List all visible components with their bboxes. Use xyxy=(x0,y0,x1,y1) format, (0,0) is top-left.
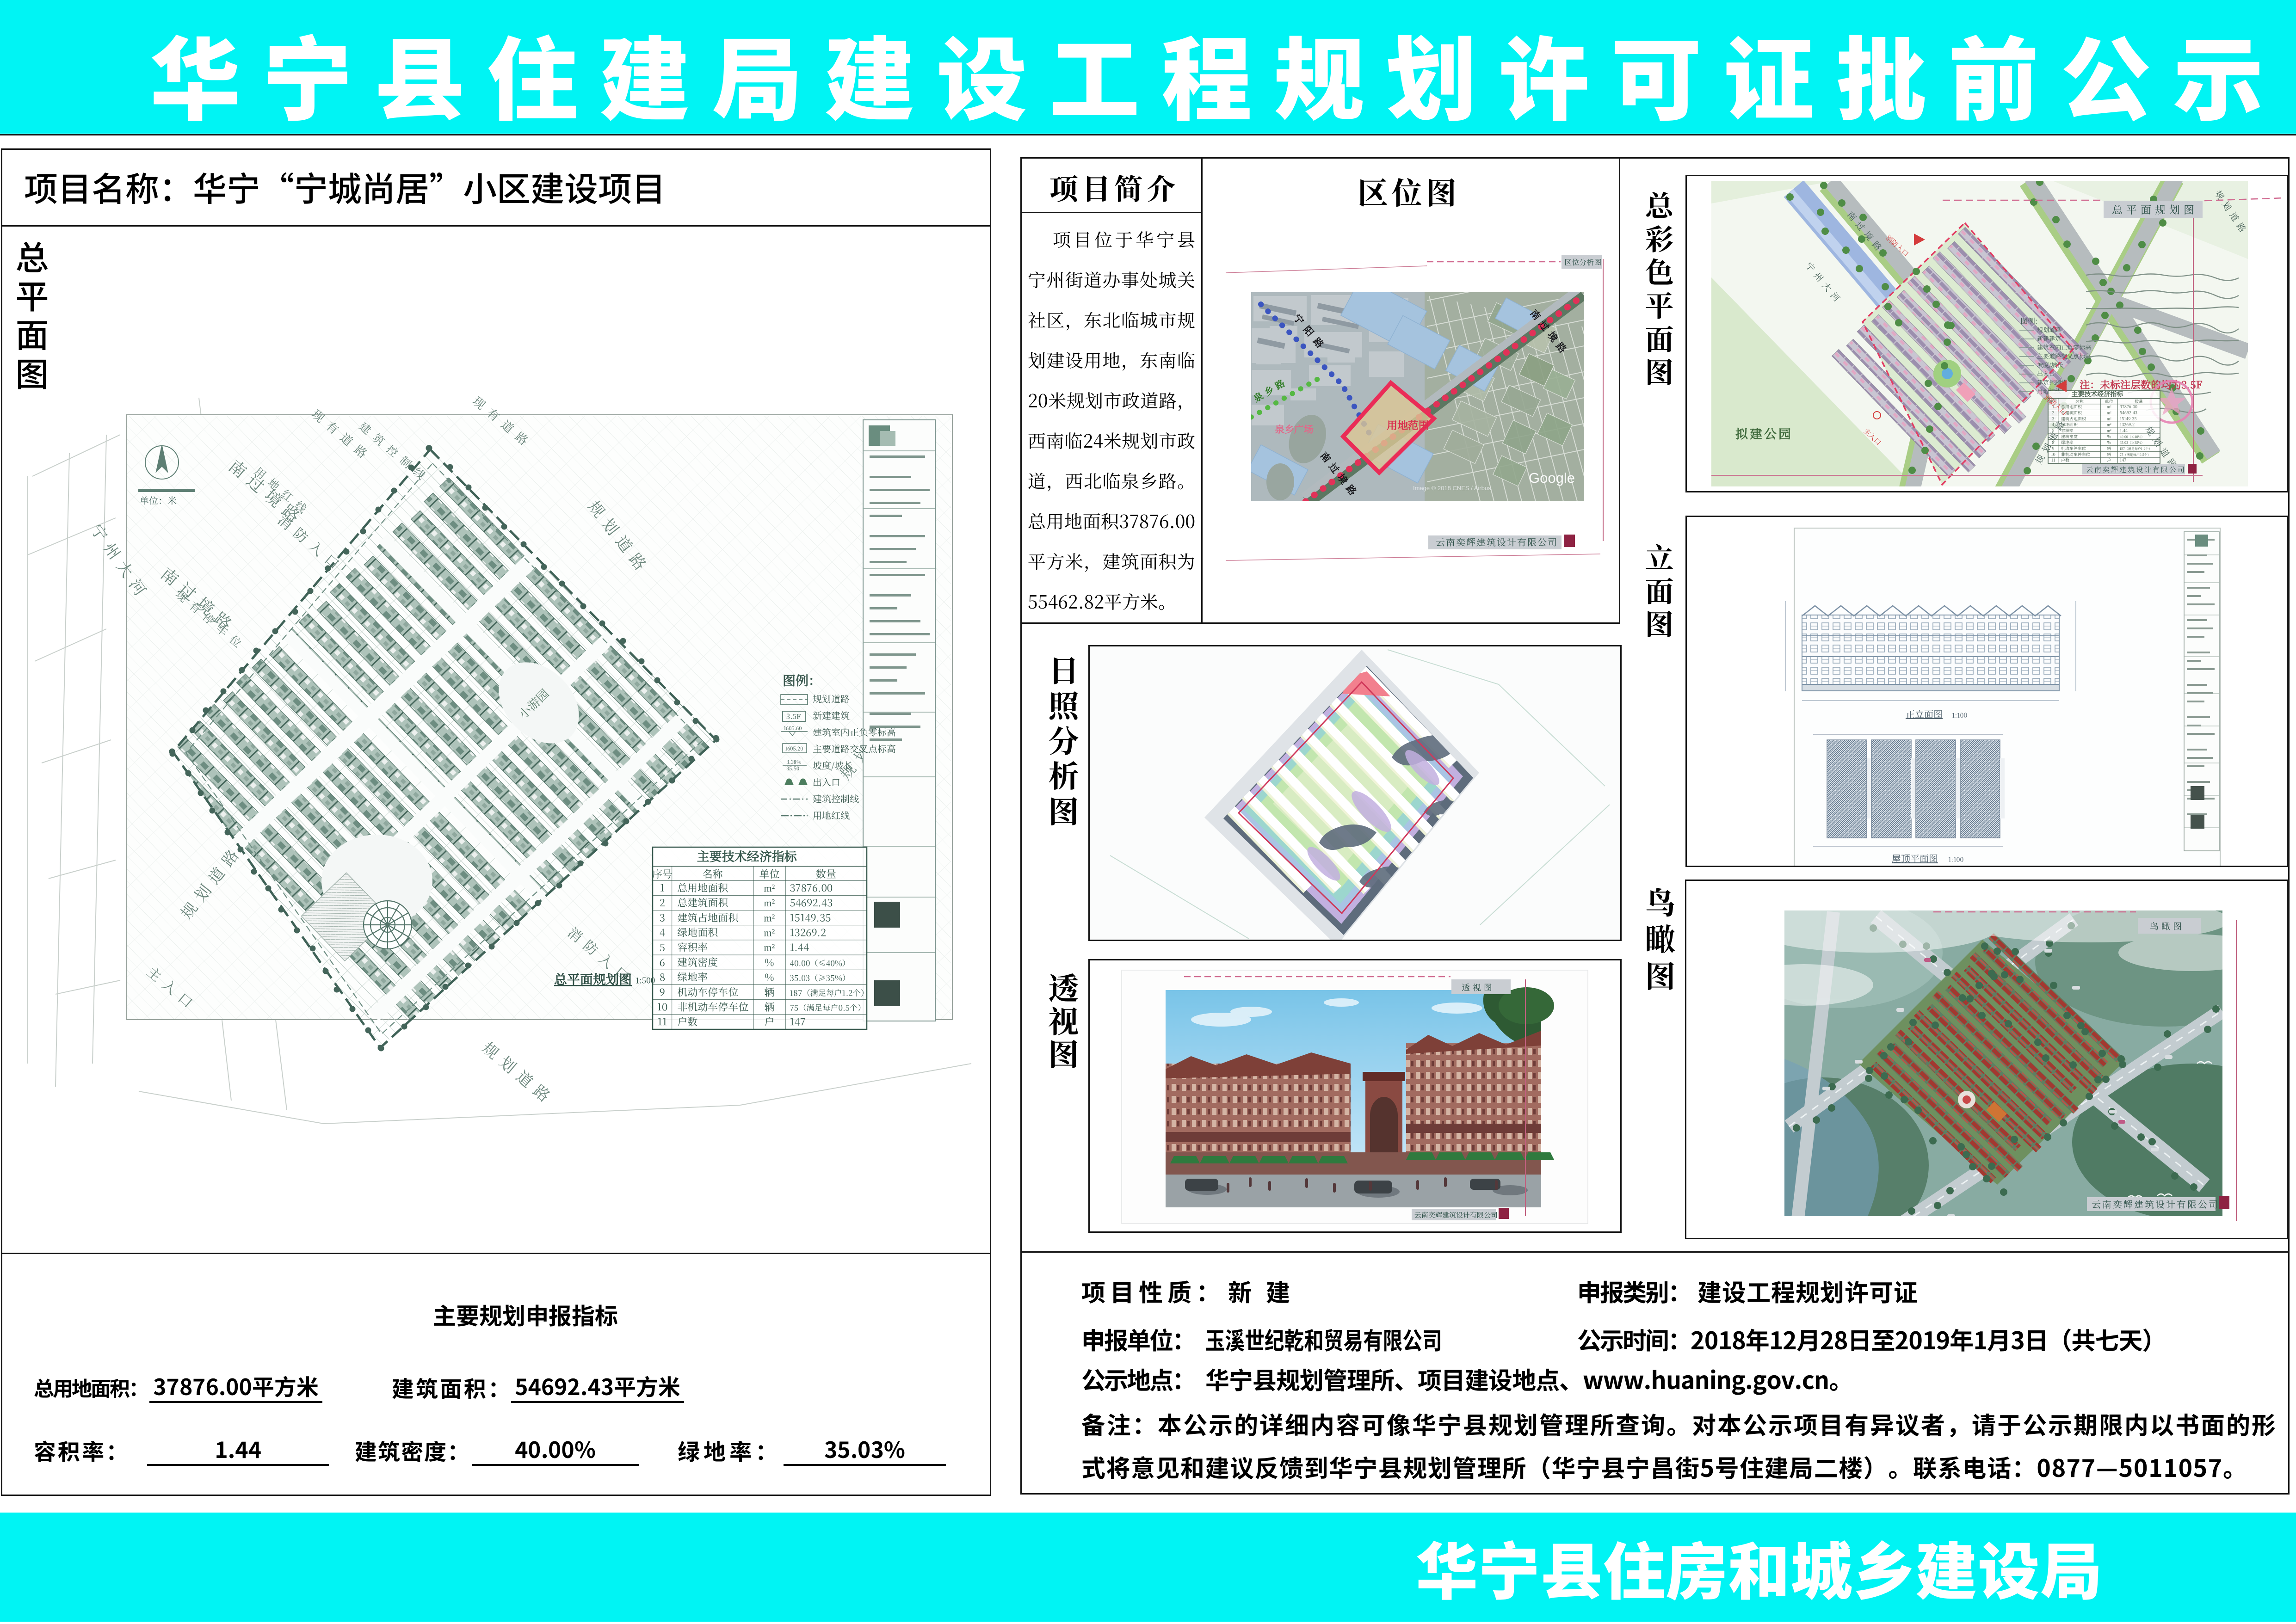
svg-text:1605.20: 1605.20 xyxy=(785,745,803,752)
svg-text:辆: 辆 xyxy=(764,984,774,999)
svg-text:2: 2 xyxy=(660,895,665,910)
svg-text:11: 11 xyxy=(657,1015,667,1029)
svg-text:建筑控制线: 建筑控制线 xyxy=(813,792,859,805)
svg-text:6: 6 xyxy=(660,955,665,969)
svg-text:规划道路: 规划道路 xyxy=(478,1036,561,1110)
svg-text:m²: m² xyxy=(764,940,775,954)
svg-text:绿地率: 绿地率 xyxy=(677,970,708,984)
svg-text:3: 3 xyxy=(660,910,665,924)
svg-text:10: 10 xyxy=(657,999,668,1014)
svg-text:单位: 单位 xyxy=(759,867,779,881)
svg-text:54692.43: 54692.43 xyxy=(790,895,833,910)
svg-text:1:500: 1:500 xyxy=(636,974,655,985)
svg-text:总建筑面积: 总建筑面积 xyxy=(677,895,728,910)
svg-text:户数: 户数 xyxy=(677,1015,697,1029)
svg-text:37876.00: 37876.00 xyxy=(790,880,833,895)
svg-text:1.44: 1.44 xyxy=(790,940,809,954)
svg-text:m²: m² xyxy=(764,910,775,924)
svg-text:建筑室内正负零标高: 建筑室内正负零标高 xyxy=(813,725,896,738)
svg-text:75（满足每户0.5个）: 75（满足每户0.5个） xyxy=(790,1001,865,1013)
svg-text:单位：米: 单位：米 xyxy=(140,493,177,507)
svg-text:建筑占地面积: 建筑占地面积 xyxy=(677,910,738,924)
svg-text:3.5F: 3.5F xyxy=(786,712,801,721)
svg-text:147: 147 xyxy=(790,1015,806,1029)
svg-text:m²: m² xyxy=(764,895,775,910)
svg-text:数量: 数量 xyxy=(816,867,836,881)
svg-text:规划道路: 规划道路 xyxy=(813,692,850,705)
svg-text:5: 5 xyxy=(660,940,665,954)
svg-text:4: 4 xyxy=(660,925,665,939)
svg-text:总平面规划图: 总平面规划图 xyxy=(554,970,632,988)
svg-text:总用地面积: 总用地面积 xyxy=(677,880,728,895)
svg-text:出入口: 出入口 xyxy=(813,775,840,788)
svg-text:m²: m² xyxy=(764,880,775,895)
svg-text:主要道路交叉点标高: 主要道路交叉点标高 xyxy=(813,742,896,755)
svg-text:绿地面积: 绿地面积 xyxy=(677,925,718,939)
svg-text:建筑密度: 建筑密度 xyxy=(677,955,718,969)
svg-text:m²: m² xyxy=(764,925,775,939)
svg-text:13269.2: 13269.2 xyxy=(790,925,826,939)
svg-text:35.03（≥35%）: 35.03（≥35%） xyxy=(790,972,850,983)
svg-text:8: 8 xyxy=(660,970,665,984)
svg-text:机动车停车位: 机动车停车位 xyxy=(677,984,738,999)
svg-text:9: 9 xyxy=(660,984,665,999)
svg-text:辆: 辆 xyxy=(764,999,774,1014)
svg-text:容积率: 容积率 xyxy=(677,940,708,954)
svg-text:名称: 名称 xyxy=(703,867,723,881)
svg-text:非机动车停车位: 非机动车停车位 xyxy=(677,999,748,1014)
svg-text:35.50: 35.50 xyxy=(786,765,799,772)
svg-text:新建建筑: 新建建筑 xyxy=(813,708,850,722)
svg-text:户: 户 xyxy=(764,1015,774,1029)
svg-text:主要技术经济指标: 主要技术经济指标 xyxy=(697,847,797,865)
svg-text:坡度/坡长: 坡度/坡长 xyxy=(813,758,853,772)
svg-text:图例：: 图例： xyxy=(783,671,821,689)
svg-text:187（满足每户1.2个）: 187（满足每户1.2个） xyxy=(790,986,869,998)
svg-text:%: % xyxy=(765,970,774,984)
svg-text:用地红线: 用地红线 xyxy=(813,808,850,822)
svg-text:15149.35: 15149.35 xyxy=(790,910,831,924)
svg-text:序号: 序号 xyxy=(652,867,673,881)
svg-text:1605.60: 1605.60 xyxy=(784,725,802,732)
svg-text:%: % xyxy=(765,955,774,969)
svg-text:40.00（≤40%）: 40.00（≤40%） xyxy=(790,957,850,968)
svg-text:1: 1 xyxy=(660,880,665,895)
